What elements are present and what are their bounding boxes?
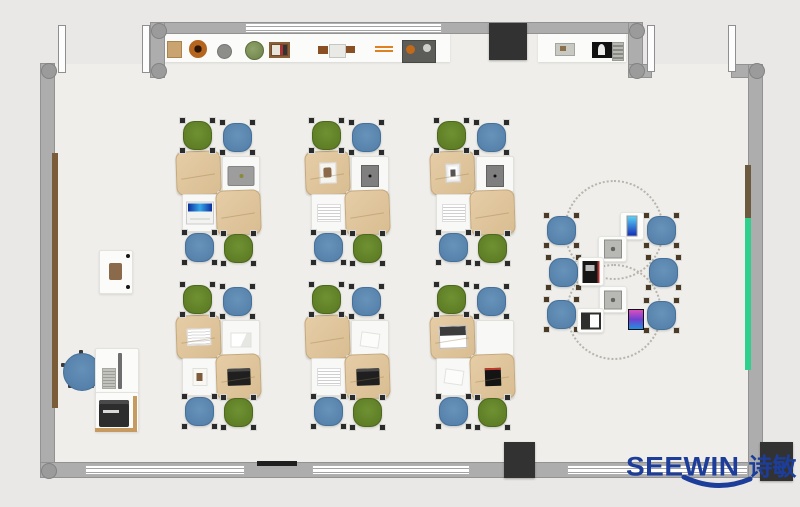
chair-leg (350, 261, 355, 266)
chair-leg (436, 260, 441, 265)
chair-leg (220, 314, 225, 319)
chair-seat (478, 398, 507, 427)
chair-leg (504, 314, 509, 319)
chair-seat (314, 233, 343, 262)
desk-item-bag (175, 314, 222, 360)
shelf-item-vent (612, 42, 624, 61)
student-chair-blue (647, 256, 680, 289)
chair-leg (475, 395, 480, 400)
student-chair-blue (475, 121, 508, 154)
chair-leg (339, 312, 344, 317)
chair-seat (185, 233, 214, 262)
chair-leg (474, 120, 479, 125)
chair-leg (182, 230, 187, 235)
chair-leg (475, 425, 480, 430)
student-chair-blue (221, 285, 254, 318)
chair-leg (341, 394, 346, 399)
logo-swoosh-icon (678, 475, 756, 490)
chair-leg (220, 150, 225, 155)
chair-leg (504, 120, 509, 125)
chair-leg (339, 118, 344, 123)
shelf-item-box-gray (555, 43, 575, 56)
chair-leg (349, 284, 354, 289)
seewin-logo: SEEWIN 诗敏 (626, 452, 796, 484)
student-chair-green (222, 232, 255, 265)
chair-leg (505, 395, 510, 400)
keyboard (102, 368, 116, 389)
chair-leg (544, 213, 549, 218)
chair-leg (436, 230, 441, 235)
chair-leg (311, 230, 316, 235)
chair-leg (674, 328, 679, 333)
chair-seat (647, 216, 676, 245)
desk-item-paper-folded (231, 333, 252, 348)
discussion-phone-color (628, 309, 644, 330)
chair-leg (221, 395, 226, 400)
chair-leg (466, 230, 471, 235)
chair-leg (464, 312, 469, 317)
chair-leg (544, 327, 549, 332)
chair-leg (180, 282, 185, 287)
chair-leg (182, 424, 187, 429)
chair-seat (547, 216, 576, 245)
door-leaf (142, 25, 150, 73)
chair-leg (212, 260, 217, 265)
teacher-podium (99, 250, 133, 294)
bottom-wall-rail (257, 461, 297, 466)
chair-seat (183, 121, 212, 150)
chair-leg (474, 150, 479, 155)
chair-seat (439, 233, 468, 262)
chair-seat (352, 287, 381, 316)
desk-item-bag (304, 314, 351, 360)
chair-leg (309, 312, 314, 317)
wall-post (41, 63, 57, 79)
shelf-item-bench-brown (318, 44, 355, 56)
desk-edge-trim (95, 428, 137, 432)
desk-item-photo (319, 162, 337, 184)
printer (99, 400, 129, 427)
desk-item-bag (175, 150, 222, 196)
chair-leg (210, 282, 215, 287)
discussion-laptop-open-white (581, 312, 601, 329)
door-leaf (647, 25, 655, 72)
chair-leg (676, 285, 681, 290)
chair-leg (379, 120, 384, 125)
chair-leg (574, 213, 579, 218)
desk-item-bag (344, 189, 391, 236)
student-chair-blue (312, 231, 345, 264)
desk-edge-trim (133, 396, 137, 432)
student-chair-blue (183, 231, 216, 264)
chair-seat (224, 234, 253, 263)
desk-item-tablet-dark (486, 165, 504, 187)
desk-item-photo-small (193, 368, 208, 386)
shelf-item-orange-lines (375, 46, 393, 53)
student-desk (346, 191, 389, 234)
student-chair-green (435, 119, 468, 152)
chair-leg (474, 284, 479, 289)
chair-leg (544, 243, 549, 248)
chair-leg (339, 148, 344, 153)
discussion-table-phone-blue (627, 216, 638, 237)
chair-leg (676, 255, 681, 260)
shelf-item-plant-green (245, 41, 264, 60)
chair-leg (436, 424, 441, 429)
desk-item-bag (304, 150, 351, 196)
chair-leg (309, 282, 314, 287)
shelf-item-pot-brown (189, 40, 207, 58)
floor-plan: SEEWIN 诗敏 (0, 0, 800, 507)
chair-leg (475, 261, 480, 266)
podium-item (109, 263, 122, 280)
student-chair-green (310, 283, 343, 316)
chair-leg (182, 260, 187, 265)
student-chair-blue (475, 285, 508, 318)
chair-leg (544, 297, 549, 302)
chair-leg (210, 118, 215, 123)
podium-knob (126, 254, 130, 258)
student-desk (182, 194, 218, 232)
desk-item-bag (215, 353, 262, 400)
chair-leg (434, 148, 439, 153)
student-chair-green (222, 396, 255, 429)
desk-item-bag (215, 189, 262, 236)
student-desk (217, 191, 260, 234)
wall-post (151, 23, 167, 39)
monitor (118, 353, 122, 389)
chair-seat (477, 287, 506, 316)
chair-leg (379, 314, 384, 319)
chair-seat (185, 397, 214, 426)
chair-leg (644, 213, 649, 218)
chair-leg (505, 425, 510, 430)
desk-item-laptop-blue (186, 202, 214, 225)
top-window (245, 23, 442, 33)
student-desk (177, 152, 220, 194)
shelf-item-box-tan (167, 41, 182, 58)
chair-seat (314, 397, 343, 426)
chair-leg (574, 297, 579, 302)
chair-leg (212, 230, 217, 235)
chair-leg (504, 150, 509, 155)
chair-leg (221, 261, 226, 266)
desk-item-paper (444, 368, 465, 385)
chair-leg (250, 314, 255, 319)
desk-item-frame (445, 163, 461, 183)
chair-leg (210, 148, 215, 153)
chair-leg (212, 424, 217, 429)
chair-leg (474, 314, 479, 319)
desk-item-tablet-dark (361, 165, 379, 187)
chair-leg (309, 148, 314, 153)
chair-leg (466, 394, 471, 399)
shelf-item-ball-gray (217, 44, 232, 59)
desk-item-book (186, 328, 211, 346)
chair-leg (380, 261, 385, 266)
chair-leg (251, 395, 256, 400)
chair-seat (353, 234, 382, 263)
chair-seat (312, 121, 341, 150)
discussion-table-device (604, 290, 622, 309)
shelf-item-clutter-tray (402, 40, 436, 63)
wall-post (629, 63, 645, 79)
chair-leg (212, 394, 217, 399)
chair-leg (339, 282, 344, 287)
left-wall-wood-panel (52, 153, 58, 408)
student-desk (306, 152, 349, 194)
student-desk (436, 194, 472, 232)
chair-leg (180, 148, 185, 153)
student-chair-blue (350, 121, 383, 154)
chair-leg (674, 243, 679, 248)
bottom-window-1 (85, 465, 245, 475)
right-wall-wood-panel (745, 165, 751, 218)
chair-leg (379, 284, 384, 289)
chair-leg (644, 298, 649, 303)
wall-post (629, 23, 645, 39)
chair-leg (380, 425, 385, 430)
bottom-window-2 (312, 465, 470, 475)
desk-item-bag (344, 353, 391, 400)
bench-mid (329, 44, 346, 58)
chair-leg (311, 394, 316, 399)
chair-leg (644, 328, 649, 333)
chair-leg (349, 314, 354, 319)
chair-leg (311, 424, 316, 429)
chair-leg (436, 394, 441, 399)
chair-leg (210, 312, 215, 317)
wall-post (151, 63, 167, 79)
desk-item-bag (429, 150, 476, 196)
chair-leg (646, 285, 651, 290)
student-desk (471, 355, 514, 398)
chair-leg (464, 148, 469, 153)
chair-leg (341, 230, 346, 235)
student-chair-green (476, 396, 509, 429)
chair-leg (504, 284, 509, 289)
chair-seat (183, 285, 212, 314)
student-desk (431, 152, 474, 194)
chair-leg (180, 312, 185, 317)
chair-leg (221, 231, 226, 236)
chair-leg (309, 118, 314, 123)
chair-leg (220, 120, 225, 125)
student-chair-green (435, 283, 468, 316)
student-chair-blue (437, 395, 470, 428)
chair-leg (475, 231, 480, 236)
chair-leg (250, 150, 255, 155)
desk-item-bag (429, 314, 476, 360)
chair-leg (464, 282, 469, 287)
desk-item-laptop-gray (228, 166, 255, 186)
desk-item-laptop-dark (227, 368, 251, 386)
student-chair-blue (350, 285, 383, 318)
student-desk (311, 194, 347, 232)
chair-seat (352, 123, 381, 152)
chair-leg (251, 231, 256, 236)
chair-leg (505, 261, 510, 266)
student-desk (177, 316, 220, 358)
chair-leg (341, 424, 346, 429)
desk-item-laptop-white (438, 325, 467, 349)
podium-knob (126, 285, 130, 289)
pillar-bottom-middle (504, 442, 535, 478)
chair-leg (644, 243, 649, 248)
student-chair-blue (547, 256, 580, 289)
student-chair-blue (221, 121, 254, 154)
chair-leg (546, 255, 551, 260)
chair-leg (349, 120, 354, 125)
chair-seat (223, 123, 252, 152)
chair-leg (434, 118, 439, 123)
shelf-item-printer-small (592, 42, 612, 58)
desk-item-book (442, 204, 466, 222)
student-chair-green (310, 119, 343, 152)
discussion-side-table (577, 308, 604, 333)
chair-leg (380, 395, 385, 400)
desk-item-laptop-red (484, 367, 501, 386)
pillar-top (489, 23, 527, 60)
student-chair-blue (312, 395, 345, 428)
chair-leg (251, 261, 256, 266)
chair-seat (437, 285, 466, 314)
chair-leg (221, 425, 226, 430)
student-chair-blue (437, 231, 470, 264)
door-leaf (728, 25, 736, 72)
chair-leg (220, 284, 225, 289)
chair-leg (349, 150, 354, 155)
chair-seat (649, 258, 678, 287)
chair-seat (549, 258, 578, 287)
chair-leg (646, 255, 651, 260)
chair-leg (505, 231, 510, 236)
wall-post (41, 463, 57, 479)
chair-seat (312, 285, 341, 314)
right-wall-green-board (745, 218, 751, 370)
chair-leg (350, 395, 355, 400)
desk-item-paper (360, 331, 381, 348)
chair-leg (464, 118, 469, 123)
student-desk (436, 358, 472, 396)
chair-seat (478, 234, 507, 263)
chair-leg (251, 425, 256, 430)
shelf-item-photo-frame (269, 42, 290, 58)
student-desk (182, 358, 218, 396)
student-desk (306, 316, 349, 358)
desk-item-laptop-dark (356, 368, 380, 386)
chair-leg (574, 243, 579, 248)
chair-leg (674, 298, 679, 303)
student-desk (346, 355, 389, 398)
door-leaf (58, 25, 66, 73)
student-chair-green (351, 232, 384, 265)
chair-leg (250, 284, 255, 289)
discussion-table-device (604, 240, 622, 259)
chair-seat (353, 398, 382, 427)
desk-item-book (317, 204, 341, 222)
chair-seat (647, 301, 676, 330)
chair-leg (341, 260, 346, 265)
chair-leg (180, 118, 185, 123)
chair-seat (224, 398, 253, 427)
desk-item-bag (469, 353, 516, 400)
chair-leg (434, 282, 439, 287)
student-desk (431, 316, 474, 358)
desk-item-book (317, 368, 341, 386)
student-chair-blue (645, 299, 678, 332)
chair-leg (674, 213, 679, 218)
chair-leg (350, 231, 355, 236)
student-desk (217, 355, 260, 398)
wall-post (749, 63, 765, 79)
chair-leg (434, 312, 439, 317)
chair-seat (437, 121, 466, 150)
student-chair-blue (545, 214, 578, 247)
student-chair-blue (645, 214, 678, 247)
student-chair-green (181, 283, 214, 316)
chair-seat (439, 397, 468, 426)
chair-leg (466, 424, 471, 429)
chair-seat (477, 123, 506, 152)
student-chair-blue (183, 395, 216, 428)
student-desk (471, 191, 514, 234)
student-chair-green (476, 232, 509, 265)
chair-leg (380, 231, 385, 236)
desk-item-bag (469, 189, 516, 236)
student-chair-green (351, 396, 384, 429)
chair-leg (311, 260, 316, 265)
teacher-desk (95, 348, 139, 394)
chair-leg (466, 260, 471, 265)
chair-leg (182, 394, 187, 399)
chair-leg (546, 285, 551, 290)
chair-leg (250, 120, 255, 125)
student-chair-blue (545, 298, 578, 331)
student-desk (311, 358, 347, 396)
discussion-side-table (578, 257, 604, 286)
chair-leg (379, 150, 384, 155)
student-chair-green (181, 119, 214, 152)
chair-seat (223, 287, 252, 316)
chair-leg (350, 425, 355, 430)
chair-seat (547, 300, 576, 329)
discussion-laptop-black (583, 261, 600, 283)
